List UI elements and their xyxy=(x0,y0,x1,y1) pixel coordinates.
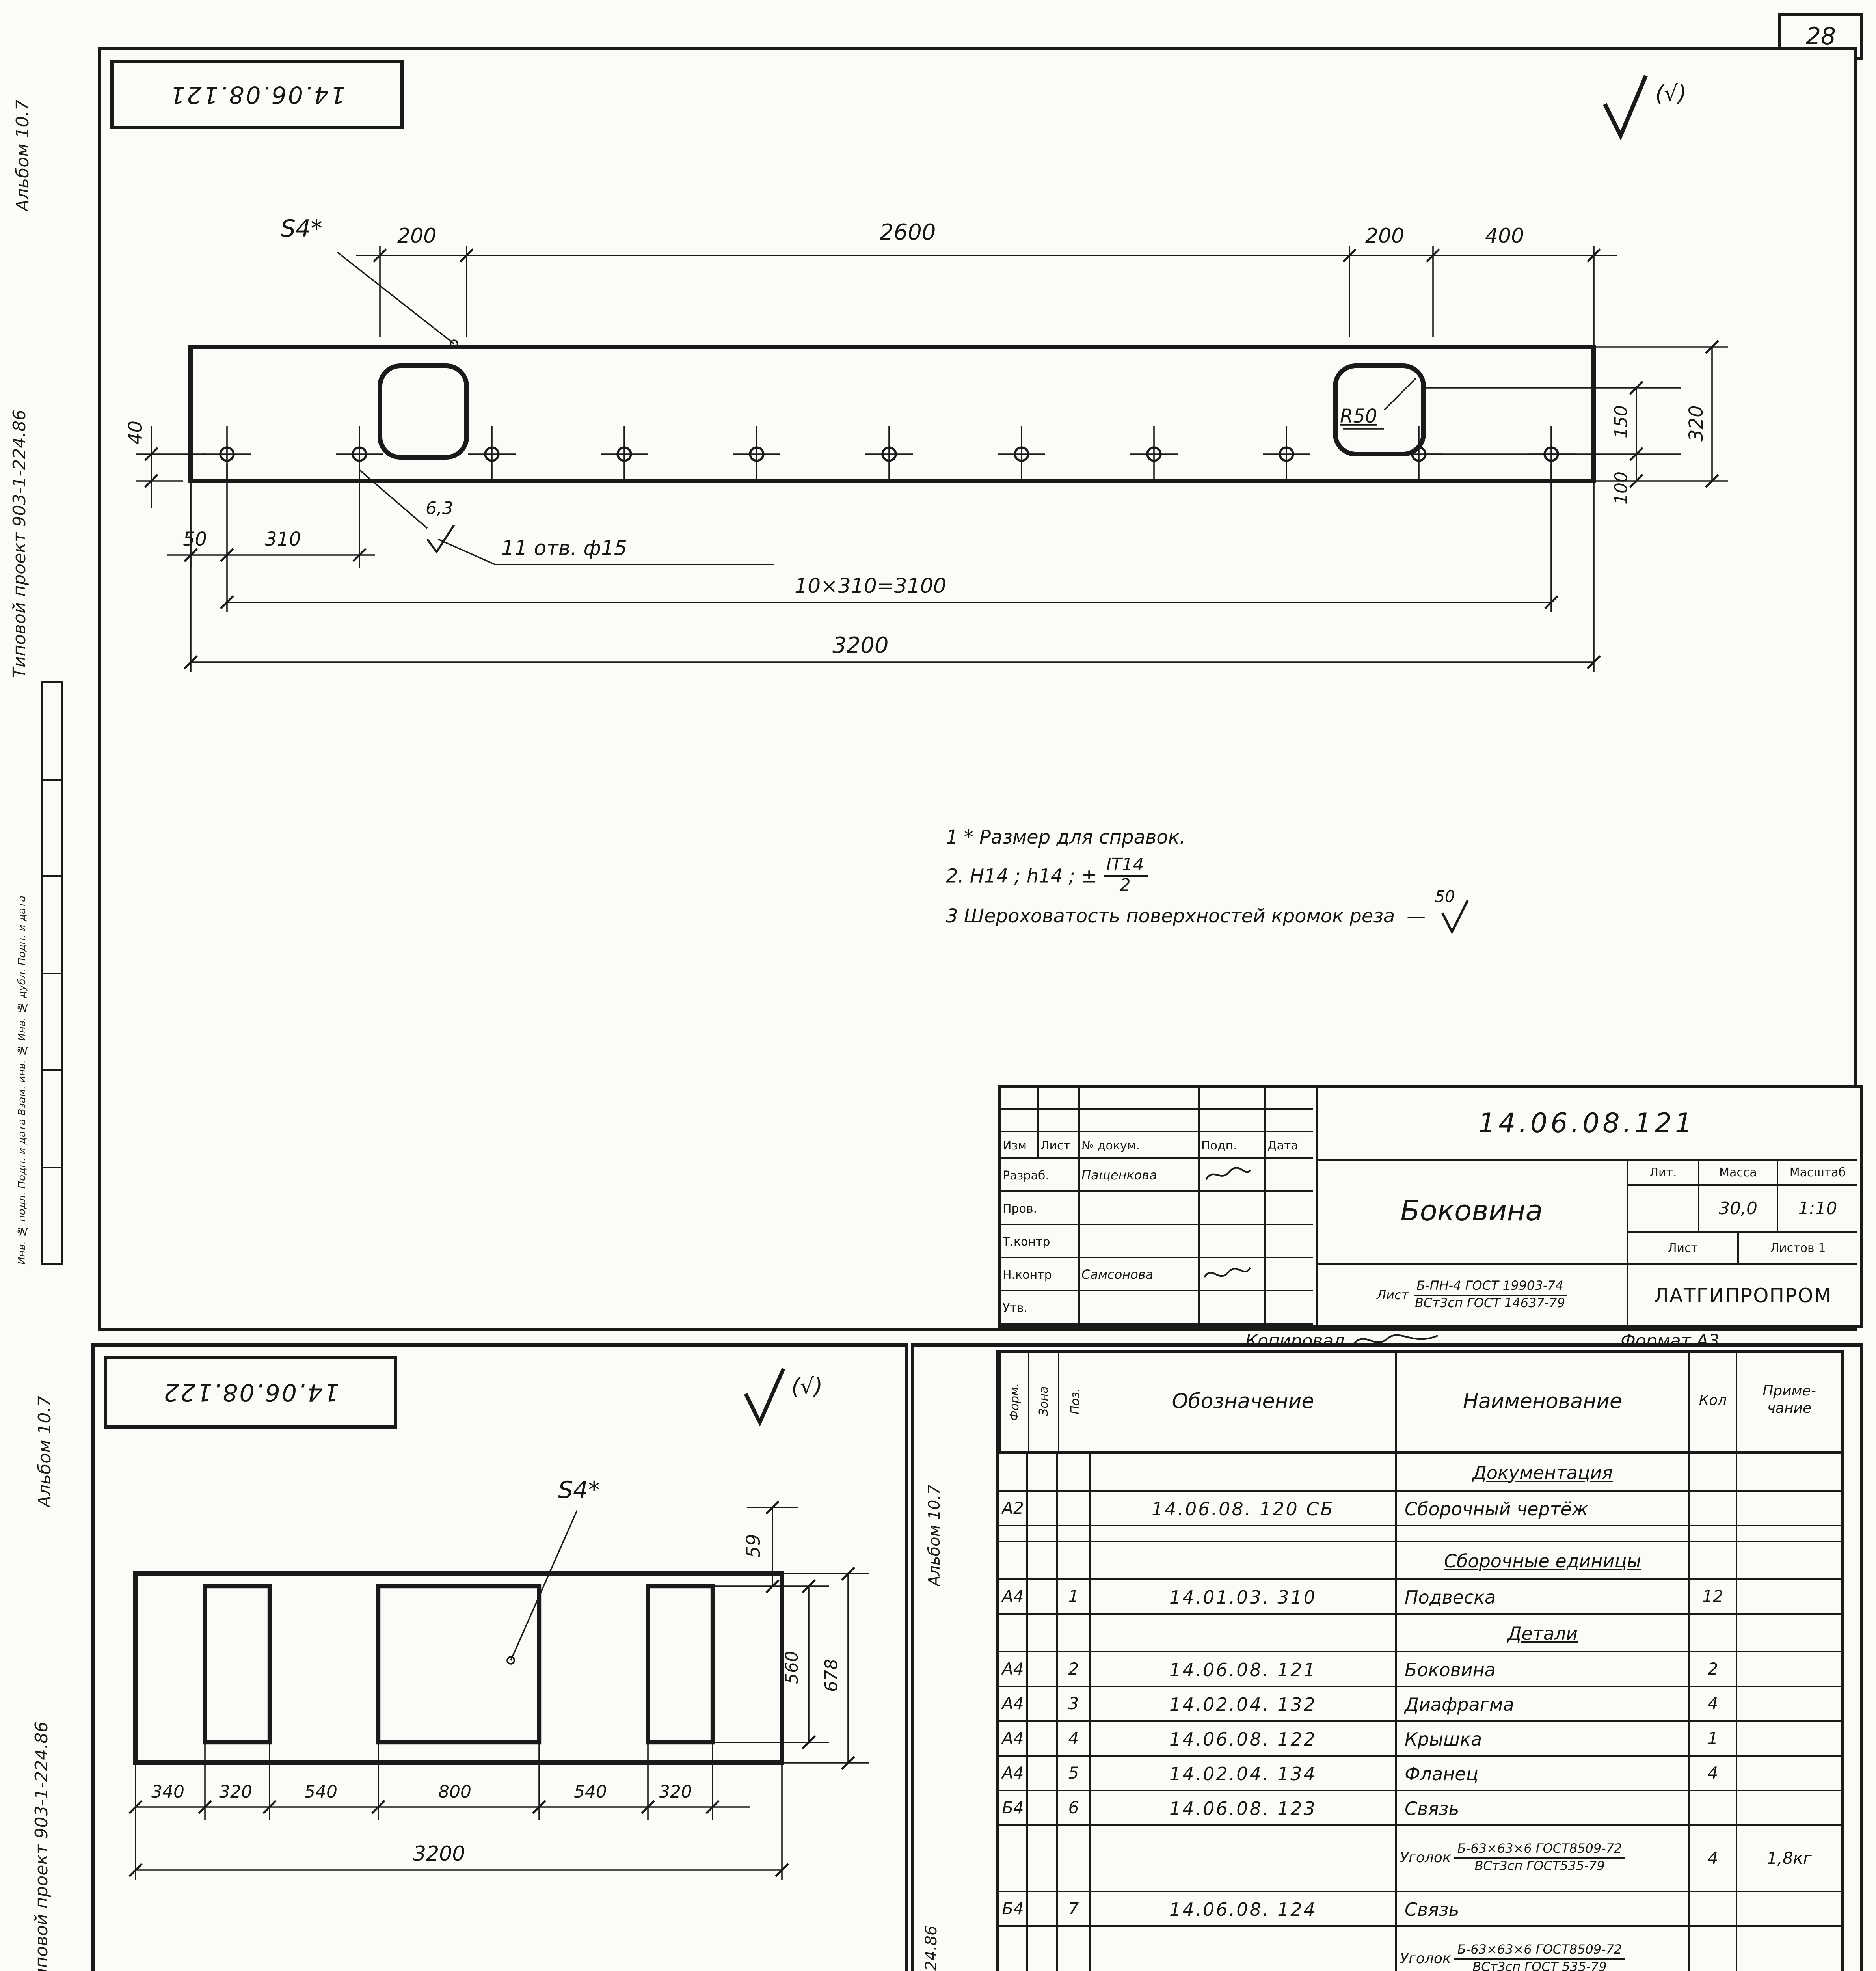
scale-value: 1:10 xyxy=(1778,1186,1857,1233)
spec-cell xyxy=(1028,1542,1058,1578)
spec-cell xyxy=(1028,1687,1058,1720)
spec-cell xyxy=(1058,1492,1091,1525)
col-naimenovanie: Наименование xyxy=(1397,1353,1690,1451)
dim-320: 320 xyxy=(1685,405,1707,442)
dim-540: 540 xyxy=(304,1782,337,1802)
spec-cell xyxy=(1737,1542,1841,1578)
col-zona: Зона xyxy=(1028,1353,1058,1451)
margin-frame-columns: Инв. № подл. Подп. и дата Взам. инв. № И… xyxy=(16,681,28,1265)
spec-cell: 14.02.04. 132 xyxy=(1091,1687,1397,1720)
dim-310: 310 xyxy=(265,528,301,550)
spec-cell xyxy=(1690,1791,1737,1824)
spec-cell xyxy=(1058,1615,1091,1651)
scanned-drawing-page: Альбом 10.7 Типовой проект 903-1-224.86 … xyxy=(0,0,1876,1971)
dim-150: 150 xyxy=(1611,405,1631,438)
spec-row: УголокБ-63×63×6 ГОСТ8509-72ВСт3сп ГОСТ 5… xyxy=(999,1927,1841,1971)
spec-cell xyxy=(1737,1927,1841,1971)
spec-cell: Сборочный чертёж xyxy=(1397,1492,1690,1525)
roughness-6-3: 6,3 xyxy=(426,498,453,518)
spec-cell xyxy=(1091,1542,1397,1578)
spec-row: А4414.06.08. 122Крышка1 xyxy=(999,1722,1841,1757)
spec-cell: Связь xyxy=(1397,1892,1690,1925)
spec-cell xyxy=(1028,1526,1058,1541)
part-name: Боковина xyxy=(1316,1161,1628,1263)
kryshka-drawing: S4* 59 340 320 540 800 540 320 3200 560 … xyxy=(104,1463,900,1971)
spec-cell xyxy=(1737,1580,1841,1613)
dim-40: 40 xyxy=(125,421,147,445)
spec-row xyxy=(999,1526,1841,1542)
spec-cell: 5 xyxy=(1058,1757,1091,1790)
spec-cell: 6 xyxy=(1058,1791,1091,1824)
spec-cell xyxy=(1028,1791,1058,1824)
spec-cell: А4 xyxy=(999,1722,1028,1755)
spec-row: А214.06.08. 120 СБСборочный чертёж xyxy=(999,1492,1841,1526)
spec-cell xyxy=(1737,1757,1841,1790)
spec-cell: 14.06.08. 124 xyxy=(1091,1892,1397,1925)
spec-cell xyxy=(1690,1526,1737,1541)
spec-row: УголокБ-63×63×6 ГОСТ8509-72ВСт3сп ГОСТ53… xyxy=(999,1826,1841,1892)
dim-400: 400 xyxy=(1485,224,1524,248)
spec-cell: Документация xyxy=(1397,1454,1690,1490)
spec-cell xyxy=(1058,1927,1091,1971)
spec-cell xyxy=(1737,1652,1841,1686)
margin-project-label: Типовой проект 903-1-224.86 xyxy=(924,1649,941,1971)
spec-cell xyxy=(1091,1826,1397,1891)
spec-cell xyxy=(1737,1526,1841,1541)
spec-cell xyxy=(1737,1722,1841,1755)
spec-cell xyxy=(1028,1615,1058,1651)
spec-cell: 1 xyxy=(1690,1722,1737,1755)
margin-album-label: Альбом 10.7 xyxy=(35,1350,55,1507)
notes-bokovina: 1 * Размер для справок. 2. Н14 ; h14 ; ±… xyxy=(946,820,1805,935)
spec-cell: Боковина xyxy=(1397,1652,1690,1686)
spec-cell: Детали xyxy=(1397,1615,1690,1651)
spec-cell xyxy=(1737,1454,1841,1490)
r50-label: R50 xyxy=(1340,405,1377,427)
page-number: 28 xyxy=(1806,22,1836,50)
spec-cell: 2 xyxy=(1690,1652,1737,1686)
spec-cell xyxy=(1028,1826,1058,1891)
spec-cell xyxy=(1091,1454,1397,1490)
spec-row: Б4614.06.08. 123Связь xyxy=(999,1791,1841,1826)
spec-cell xyxy=(1028,1580,1058,1613)
spec-cell: А2 xyxy=(999,1492,1028,1525)
spec-cell: 7 xyxy=(1058,1892,1091,1925)
spec-cell: Связь xyxy=(1397,1791,1690,1824)
roughness-paren: (√) xyxy=(791,1375,823,1400)
dim-540: 540 xyxy=(574,1782,607,1802)
spec-cell: 1,8кг xyxy=(1737,1826,1841,1891)
spec-cell: 4 xyxy=(1690,1826,1737,1891)
spec-cell xyxy=(1058,1454,1091,1490)
spec-cell: Фланец xyxy=(1397,1757,1690,1790)
spec-cell xyxy=(1737,1492,1841,1525)
spec-row: А4114.01.03. 310Подвеска12 xyxy=(999,1580,1841,1615)
spec-cell xyxy=(1690,1892,1737,1925)
spec-cell: Б4 xyxy=(999,1892,1028,1925)
stamp-number: 14.06.08.121 xyxy=(169,80,346,109)
spec-cell xyxy=(1690,1492,1737,1525)
spec-cell xyxy=(1091,1927,1397,1971)
material-spec: Лист Б-ПН-4 ГОСТ 19903-74ВСт3сп ГОСТ 146… xyxy=(1316,1265,1628,1325)
doc-number: 14.06.08.121 xyxy=(1316,1088,1857,1161)
spec-row: А4314.02.04. 132Диафрагма4 xyxy=(999,1687,1841,1722)
spec-cell xyxy=(1690,1927,1737,1971)
spec-cell xyxy=(999,1542,1028,1578)
tb-lit-block: Лит.МассаМасштаб 30,0 1:10 ЛистЛистов 1 xyxy=(1628,1161,1857,1263)
spec-cell xyxy=(1058,1542,1091,1578)
spec-cell xyxy=(1737,1615,1841,1651)
margin-cells xyxy=(41,681,63,1265)
spec-cell: Сборочные единицы xyxy=(1397,1542,1690,1578)
spec-cell: 14.02.04. 134 xyxy=(1091,1757,1397,1790)
bokovina-drawing: S4* 200 2600 200 400 40 50 310 6,3 11 от… xyxy=(104,189,1775,733)
dim-320: 320 xyxy=(219,1782,252,1802)
dim-3200: 3200 xyxy=(832,633,889,658)
spec-cell: 14.06.08. 121 xyxy=(1091,1652,1397,1686)
spec-cell: Диафрагма xyxy=(1397,1687,1690,1720)
spec-cell xyxy=(1690,1454,1737,1490)
spec-cell: А4 xyxy=(999,1580,1028,1613)
dim-800: 800 xyxy=(438,1782,471,1802)
spec-row: Детали xyxy=(999,1615,1841,1652)
note-2: 2. Н14 ; h14 ; ± IT142 xyxy=(946,856,1805,897)
holes-label: 11 отв. ф15 xyxy=(501,537,627,560)
dim-200-right: 200 xyxy=(1365,224,1404,248)
stamp-box: 14.06.08.121 xyxy=(110,60,404,129)
spec-cell: А4 xyxy=(999,1687,1028,1720)
spec-row: А4214.06.08. 121Боковина2 xyxy=(999,1652,1841,1687)
margin-project-label: Типовой проект 903-1-224.86 xyxy=(9,221,30,678)
spec-cell xyxy=(999,1454,1028,1490)
spec-cell: 4 xyxy=(1690,1687,1737,1720)
overall-roughness-mark-icon: (√) xyxy=(741,1366,823,1429)
spec-cell xyxy=(1690,1615,1737,1651)
tb-signature-grid: ИзмЛист № докум.Подп. Дата Разраб.Пащенк… xyxy=(1001,1088,1318,1325)
dim-678: 678 xyxy=(821,1659,841,1692)
spec-cell xyxy=(1058,1526,1091,1541)
spec-cell xyxy=(1028,1927,1058,1971)
spec-cell: А4 xyxy=(999,1757,1028,1790)
dim-200-left: 200 xyxy=(397,224,436,248)
spec-row: Документация xyxy=(999,1454,1841,1492)
spec-cell xyxy=(1028,1652,1058,1686)
spec-cell: 2 xyxy=(1058,1652,1091,1686)
dim-2600: 2600 xyxy=(880,220,936,245)
spec-cell xyxy=(1091,1615,1397,1651)
spec-cell xyxy=(999,1526,1028,1541)
spec-cell xyxy=(1737,1687,1841,1720)
spec-header: Форм. Зона Поз. Обозначение Наименование… xyxy=(999,1353,1841,1454)
drawing-album-page: Альбом 10.7 Типовой проект 903-1-224.86 … xyxy=(0,0,1876,1971)
dim-50: 50 xyxy=(183,528,207,550)
spec-cell: 14.01.03. 310 xyxy=(1091,1580,1397,1613)
spec-cell: 14.06.08. 120 СБ xyxy=(1091,1492,1397,1525)
col-kol: Кол xyxy=(1690,1353,1737,1451)
spec-cell xyxy=(1397,1526,1690,1541)
spec-cell xyxy=(1028,1454,1058,1490)
dim-59: 59 xyxy=(743,1534,765,1558)
stamp-number: 14.06.08.122 xyxy=(162,1378,339,1407)
spec-cell: Подвеска xyxy=(1397,1580,1690,1613)
spec-row: А4514.02.04. 134Фланец4 xyxy=(999,1757,1841,1791)
overall-roughness-mark-icon: (√) xyxy=(1599,73,1686,142)
spec-cell xyxy=(999,1615,1028,1651)
col-primechanie: Приме-чание xyxy=(1737,1353,1841,1451)
spec-cell xyxy=(1690,1542,1737,1578)
margin-album-label: Альбом 10.7 xyxy=(13,54,33,211)
col-oboznachenie: Обозначение xyxy=(1091,1353,1397,1451)
dim-3200: 3200 xyxy=(413,1842,465,1866)
col-form: Форм. xyxy=(999,1353,1028,1451)
spec-cell: УголокБ-63×63×6 ГОСТ8509-72ВСт3сп ГОСТ53… xyxy=(1397,1826,1690,1891)
spec-cell xyxy=(999,1826,1028,1891)
spec-cell: УголокБ-63×63×6 ГОСТ8509-72ВСт3сп ГОСТ 5… xyxy=(1397,1927,1690,1971)
spec-cell xyxy=(1737,1892,1841,1925)
spec-cell xyxy=(1091,1526,1397,1541)
organization: ЛАТГИПРОПРОМ xyxy=(1628,1265,1857,1325)
dim-320: 320 xyxy=(659,1782,692,1802)
spec-cell xyxy=(1058,1826,1091,1891)
spec-cell: 4 xyxy=(1058,1722,1091,1755)
spec-cell xyxy=(999,1927,1028,1971)
dim-560: 560 xyxy=(782,1651,802,1684)
note-1: 1 * Размер для справок. xyxy=(946,820,1805,856)
spec-cell: 4 xyxy=(1690,1757,1737,1790)
s4-label: S4* xyxy=(281,215,322,242)
spec-cell: А4 xyxy=(999,1652,1028,1686)
spec-cell xyxy=(1028,1757,1058,1790)
s4-label: S4* xyxy=(558,1476,600,1504)
spec-cell: Крышка xyxy=(1397,1722,1690,1755)
spec-cell: 14.06.08. 123 xyxy=(1091,1791,1397,1824)
spec-cell: Б4 xyxy=(999,1791,1028,1824)
margin-album-label: Альбом 10.7 xyxy=(927,1366,944,1586)
dim-100: 100 xyxy=(1611,471,1631,505)
spec-cell: 1 xyxy=(1058,1580,1091,1613)
spec-cell xyxy=(1737,1791,1841,1824)
mass-value: 30,0 xyxy=(1699,1186,1778,1233)
dim-340: 340 xyxy=(151,1782,184,1802)
note-3: 3 Шероховатость поверхностей кромок реза… xyxy=(946,897,1805,935)
title-block-bokovina: ИзмЛист № докум.Подп. Дата Разраб.Пащенк… xyxy=(998,1085,1863,1328)
spec-row: Б4714.06.08. 124Связь xyxy=(999,1892,1841,1927)
col-poz: Поз. xyxy=(1058,1353,1091,1451)
spec-row: Сборочные единицы xyxy=(999,1542,1841,1580)
spec-cell: 12 xyxy=(1690,1580,1737,1613)
spec-cell xyxy=(1028,1722,1058,1755)
stamp-box: 14.06.08.122 xyxy=(104,1356,397,1429)
spec-cell: 14.06.08. 122 xyxy=(1091,1722,1397,1755)
spec-cell: 3 xyxy=(1058,1687,1091,1720)
tb-main: 14.06.08.121 Боковина Лит.МассаМасштаб 3… xyxy=(1316,1088,1857,1325)
spec-table: Форм. Зона Поз. Обозначение Наименование… xyxy=(996,1350,1844,1971)
margin-project-label: Типовой проект 903-1-224.86 xyxy=(32,1517,52,1971)
spec-cell xyxy=(1028,1492,1058,1525)
roughness-50-icon: 50 xyxy=(1438,897,1473,935)
spec-table-rows: ДокументацияА214.06.08. 120 СБСборочный … xyxy=(999,1454,1841,1971)
dim-3100: 10×310=3100 xyxy=(795,574,946,598)
spec-cell xyxy=(1028,1892,1058,1925)
roughness-paren: (√) xyxy=(1655,82,1686,107)
